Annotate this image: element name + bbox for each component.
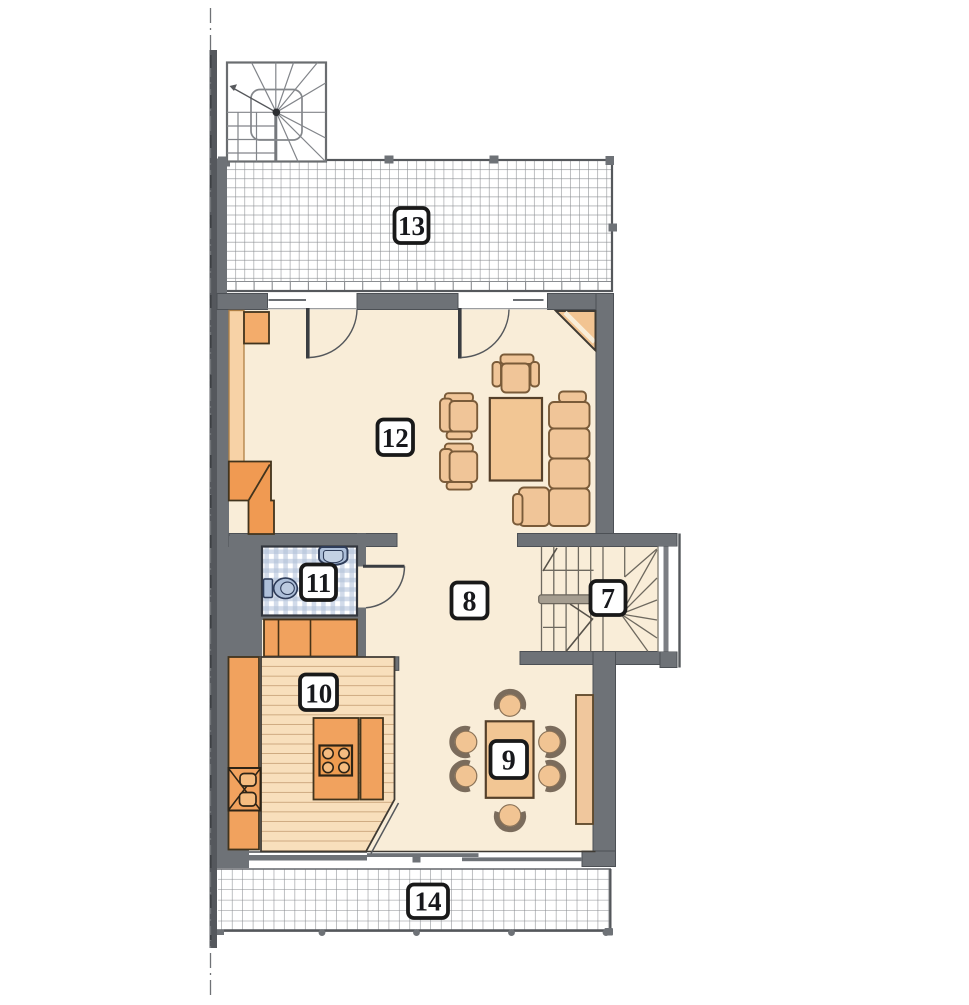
svg-text:12: 12 [382,423,409,453]
svg-text:14: 14 [415,887,442,917]
svg-text:8: 8 [463,587,477,618]
svg-text:7: 7 [601,584,615,615]
svg-text:11: 11 [306,568,332,598]
svg-text:13: 13 [398,211,425,241]
svg-text:9: 9 [502,746,516,777]
svg-text:10: 10 [305,679,332,709]
